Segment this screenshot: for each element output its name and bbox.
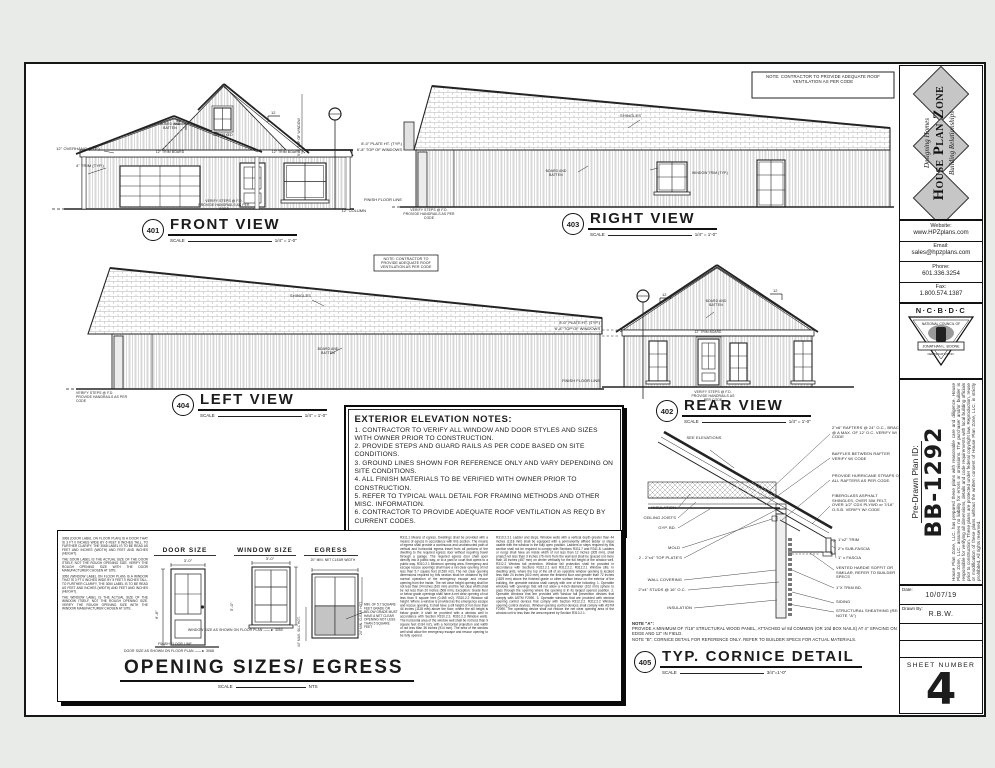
- scale-value: NTS: [309, 684, 318, 689]
- scale-label: SCALE: [218, 684, 233, 689]
- cornice-label: FIBERGLASS ASPHALT SHINGLES, OVER 30# FE…: [832, 494, 898, 512]
- phone-value: 601.336.3254: [900, 270, 982, 277]
- board-batten-callout: BOARD AND BATTEN: [542, 170, 570, 178]
- egress-diagram: [298, 557, 368, 649]
- window-top-dim: 6'-8" TOP OF WINDOWS: [542, 326, 600, 332]
- window-top-dim: 6'-8" TOP OF WINDOWS: [344, 147, 402, 153]
- logo-brand: House Plan Zone: [931, 86, 948, 201]
- ceiling-insulation: [648, 482, 776, 498]
- trim-board-callout: 12" TRIM BOARD: [686, 331, 730, 335]
- plan-id-label: Pre-Drawn Plan ID:: [910, 441, 922, 522]
- opening-note: THE DOOR LABEL IS THE ACTUAL SIZE OF THE…: [62, 558, 148, 573]
- overhang-callout: 12" OVERHANG (TYP.): [56, 147, 100, 152]
- date-row: Date: 10/07/19: [900, 586, 982, 605]
- door-height-dim: 6'-8": [155, 579, 160, 619]
- egress-clear-area: [315, 606, 335, 635]
- cornice-label: 2"x4" STUDS @ 16" O.C.: [630, 588, 686, 593]
- email-value: sales@hpzplans.com: [900, 249, 982, 256]
- door-size-diagram: [153, 557, 223, 653]
- note-item: 4. ALL FINISH MATERIALS TO BE VERIFIED W…: [355, 476, 614, 493]
- website-row: Website: www.HPZplans.com: [900, 221, 982, 242]
- note-item: 3. GROUND LINES SHOWN FOR REFERENCE ONLY…: [355, 460, 614, 477]
- scale-label: SCALE: [200, 413, 215, 418]
- note-item: 6. CONTRACTOR TO PROVIDE ADEQUATE ROOF V…: [355, 509, 614, 526]
- empty-row: [900, 624, 982, 641]
- gable-window-label: 2020 FIXED: [208, 134, 238, 138]
- drawn-by-row: Drawn By: R.B.W.: [900, 605, 982, 624]
- roof-vent-note: NOTE: CONTRACTOR TO PROVIDE ADEQUATE ROO…: [375, 257, 437, 269]
- ncbdc-acronym: N·C·B·D·C: [900, 306, 982, 315]
- cornice-label: BAFFLES BETWEEN RAFTER VERIFY W/ CODE: [832, 452, 894, 461]
- window-height-dim: 5'-0": [230, 571, 235, 611]
- window-height-dim: 9'-0" TOP OF WINDOW: [298, 96, 302, 156]
- side-wall: [112, 334, 600, 389]
- code-text: R311.1 Means of egress. Dwellings shall …: [400, 536, 488, 638]
- roof-vent-note: NOTE: CONTRACTOR TO PROVIDE ADEQUATE ROO…: [755, 75, 891, 85]
- code-text-column-1: R311.1 Means of egress. Dwellings shall …: [400, 536, 488, 696]
- door-width-dim: 3'-0": [170, 559, 206, 564]
- opening-title-text: OPENING SIZES/ EGRESS: [120, 657, 414, 682]
- board-batten-callout: BOARD AND BATTEN: [702, 300, 730, 308]
- fax-value: 1.800.574.1387: [900, 290, 982, 297]
- note-b-text: NOTE "B": CORNICE DETAIL FOR REFERENCE O…: [632, 638, 904, 643]
- fax-row: Fax: 1.800.574.1387: [900, 283, 982, 303]
- scale-label: SCALE: [662, 670, 677, 675]
- cornice-label: PROVIDE HURRICANE STRAPS ON ALL RAFTERS …: [832, 474, 902, 483]
- window-size-label: WINDOW SIZE: [234, 547, 296, 556]
- cornice-label: 1" x FASCIA: [838, 556, 898, 561]
- window-size-diagram: [238, 557, 302, 637]
- front-view-title: 401 FRONT VIEW SCALE1/4" = 1'-0": [142, 216, 297, 243]
- board-batten-callout: BOARD AND BATTEN: [156, 123, 184, 131]
- opening-title: OPENING SIZES/ EGRESS SCALENTS: [120, 657, 414, 689]
- stud-wall: [776, 514, 786, 618]
- window-plan-text: WINDOW SIZE AS SHOWN ON FLOOR PLAN: [188, 628, 262, 632]
- window-plan-code: 3050: [275, 628, 283, 632]
- plan-sheet: 12 12 12" OVERHANG (TYP.) 4" TRIM (TYP.)…: [24, 62, 986, 717]
- ncbdc-section: N·C·B·D·C NATIONAL COUNCIL OF JONATHAN L…: [900, 304, 982, 380]
- cornice-label: INSULATION: [652, 606, 692, 611]
- roof-sheathing: [664, 432, 832, 528]
- door-size-label: DOOR SIZE: [154, 547, 216, 556]
- window-width-dim: 3'-0": [250, 557, 290, 562]
- company-logo: Designing Homes House Plan Zone Building…: [900, 66, 982, 221]
- view-title-text: FRONT VIEW: [168, 216, 297, 236]
- sub-fascia: [826, 538, 831, 552]
- finish-floor-label: FINISH FLOOR LINE: [348, 197, 402, 203]
- left-view-drawing: NOTE: CONTRACTOR TO PROVIDE ADEQUATE ROO…: [62, 254, 607, 424]
- detail-bubble: 402: [656, 400, 678, 422]
- pitch-label: 12: [662, 292, 667, 297]
- scale-value: 1/4" = 1'-0": [305, 413, 327, 418]
- cornice-label: CEILING JOISTS: [630, 516, 676, 521]
- fine-print-wrap: House Plan Zone, LLC. has prepared these…: [951, 383, 981, 581]
- code-text: R310.2.3.1 Ladder and steps. Window well…: [496, 536, 614, 615]
- porch-post: [114, 336, 123, 389]
- website-value: www.HPZplans.com: [900, 229, 982, 236]
- arrow-icon: ——►: [195, 649, 205, 653]
- ncbdc-cert-text: CERTIFICATION NO.: [928, 352, 955, 356]
- view-title-text: REAR VIEW: [682, 397, 811, 417]
- scale-value: 3/4"=1'-0": [767, 670, 786, 675]
- arrow-icon: ——►: [263, 628, 273, 632]
- left-elevation-svg: [62, 254, 607, 424]
- drawn-by-label: Drawn By:: [902, 606, 923, 611]
- left-view-title: 404 LEFT VIEW SCALE1/4" = 1'-0": [172, 391, 327, 418]
- detail-bubble: 401: [142, 219, 164, 241]
- pitch-label: 12: [773, 288, 778, 293]
- cornice-label: 2"x SUB-FASCIA: [838, 547, 898, 552]
- plan-id-section: Pre-Drawn Plan ID: BB-1292 House Plan Zo…: [900, 380, 982, 586]
- egress-label: EGRESS: [304, 547, 358, 556]
- note-item: 1. CONTRACTOR TO VERIFY ALL WINDOW AND D…: [355, 427, 614, 444]
- height-dims: 8'-0" PLATE HT. (TYP.) 6'-8" TOP OF WIND…: [542, 320, 600, 332]
- board-batten-callout: BOARD AND BATTEN: [314, 348, 342, 356]
- empty-row: [900, 641, 982, 658]
- sheet-number-value: 4: [900, 669, 982, 711]
- opening-note: THE WINDOW LABEL IS THE ACTUAL SIZE OF T…: [62, 596, 148, 611]
- window-trim-callout: WINDOW TRIM (TYP.): [692, 172, 734, 176]
- cornice-label: 2 - 2"x4" TOP PLATE'S: [630, 556, 682, 561]
- logo-tagline-bottom: Building Relationships: [948, 111, 956, 175]
- steps-note: VERIFY STEPS @ F.D. PROVIDE HANDRAILS AS…: [76, 392, 128, 404]
- finish-floor-label: FINISH FLOOR LINE: [546, 378, 600, 384]
- email-row: Email: sales@hpzplans.com: [900, 242, 982, 263]
- copyright-fine-print: House Plan Zone, LLC. has prepared these…: [951, 383, 981, 581]
- window-plan-note: WINDOW SIZE AS SHOWN ON FLOOR PLAN ——► 3…: [188, 629, 318, 633]
- contact-section: Website: www.HPZplans.com Email: sales@h…: [900, 221, 982, 304]
- door-plan-note: DOOR SIZE AS SHOWN ON FLOOR PLAN ——► 306…: [124, 650, 254, 654]
- cornice-label: INSULATION: [636, 506, 676, 511]
- front-elevation-svg: 12 12: [52, 66, 362, 221]
- detail-bubble: 403: [562, 213, 584, 235]
- detail-bubble: 405: [634, 651, 656, 673]
- door-plan-text: DOOR SIZE AS SHOWN ON FLOOR PLAN: [124, 649, 194, 653]
- notes-title: EXTERIOR ELEVATION NOTES:: [355, 414, 614, 425]
- steps-note: VERIFY STEPS @ F.D. PROVIDE HANDRAILS AS…: [198, 200, 250, 212]
- opening-sizes-box: 3068 (DOOR LABEL ON FLOOR PLAN) IS A DOO…: [57, 530, 622, 702]
- cornice-label: GYP. BD.: [642, 526, 676, 531]
- sill-height-dim: 44" MAX. SILL HGT.: [298, 603, 302, 647]
- phone-row: Phone: 601.336.3254: [900, 262, 982, 283]
- pitch-label: 12: [271, 110, 276, 115]
- see-elevations-label: SEE ELEVATIONS: [682, 436, 726, 441]
- shingles-callout: SHINGLES: [290, 294, 326, 299]
- scale-value: 1/4" = 1'-0": [695, 232, 717, 237]
- ncbdc-logo: NATIONAL COUNCIL OF JONATHAN L. BOONE CE…: [905, 315, 977, 369]
- plan-id-value: BB-1292: [922, 427, 947, 538]
- front-view-drawing: 12 12 12" OVERHANG (TYP.) 4" TRIM (TYP.)…: [52, 66, 362, 221]
- detail-bubble: 404: [172, 394, 194, 416]
- side-wall: [416, 150, 890, 207]
- finish-floor-label: FINISH FLOOR LINE: [158, 643, 218, 647]
- sheet-number-section: SHEET NUMBER 4: [900, 658, 982, 713]
- opening-note: 3068 (DOOR LABEL ON FLOOR PLAN) IS A DOO…: [62, 537, 148, 556]
- roof-plane: [88, 268, 602, 334]
- egress-width-dim: 20" MIN. NET CLEAR WIDTH: [306, 559, 360, 563]
- cornice-notes: NOTE "A": PROVIDE A MINIMUM OF 7/16" STR…: [632, 622, 904, 643]
- egress-note-wrap: MIN. OF 5.7 SQUARE FEET GRADE OR BELOW G…: [364, 603, 398, 647]
- cornice-label: SIDING: [836, 600, 876, 605]
- view-title-text: LEFT VIEW: [198, 391, 327, 411]
- date-label: Date:: [902, 587, 913, 592]
- trim-callout: 4" TRIM (TYP.): [66, 164, 104, 169]
- cornice-label: MOLD: [660, 546, 680, 551]
- ncbdc-member-name: JONATHAN L. BOONE: [922, 345, 960, 349]
- egress-note: MIN. OF 5.7 SQUARE FEET GRADE OR BELOW G…: [364, 603, 398, 629]
- column-label: 12" COLUMN: [326, 208, 366, 214]
- scale-value: 1/4" = 1'-0": [275, 238, 297, 243]
- note-a-text: PROVIDE A MINIMUM OF 7/16" STRUCTURAL WO…: [632, 627, 904, 637]
- cornice-label: 2"x6" RAFTERS @ 24" O.C., BRACE @ A MAX.…: [832, 426, 902, 440]
- trim-board-callout: 12" TRIM BOARD: [148, 151, 192, 155]
- scale-label: SCALE: [170, 238, 185, 243]
- shingles-callout: SHINGLES: [620, 114, 656, 119]
- logo-tagline-top: Designing Homes: [923, 118, 931, 168]
- right-view-title: 403 RIGHT VIEW SCALE1/4" = 1'-0": [562, 210, 717, 237]
- exterior-elevation-notes-box: EXTERIOR ELEVATION NOTES: 1. CONTRACTOR …: [344, 405, 624, 535]
- cornice-title: 405 TYP. CORNICE DETAIL SCALE3/4"=1'-0": [634, 648, 862, 675]
- cornice-label: WALL COVERING: [638, 578, 682, 583]
- door-plan-code: 3068: [206, 649, 214, 653]
- cornice-label: 1"X TRIM BD.: [836, 586, 896, 591]
- egress-clear-area: [335, 606, 355, 635]
- code-text-column-2: R310.2.3.1 Ladder and steps. Window well…: [496, 536, 614, 696]
- trim-band: [80, 150, 352, 157]
- cornice-label: 1"x2" TRIM: [838, 538, 898, 543]
- cornice-label: STRUCTURAL SHEATHING (RE: NOTE "A"): [836, 609, 902, 618]
- note-item: 5. REFER TO TYPICAL WALL DETAIL FOR FRAM…: [355, 493, 614, 510]
- title-block: Designing Homes House Plan Zone Building…: [899, 65, 983, 714]
- porch-post: [418, 152, 427, 207]
- logo-text: Designing Homes House Plan Zone Building…: [900, 68, 979, 218]
- note-item: 2. PROVIDE STEPS AND GUARD RAILS AS PER …: [355, 443, 614, 460]
- opening-note: 3050 (WINDOW LABEL ON FLOOR PLAN) IS A W…: [62, 575, 148, 594]
- height-dims: 8'-0" PLATE HT. (TYP.) 6'-8" TOP OF WIND…: [344, 141, 402, 153]
- view-title-text: RIGHT VIEW: [588, 210, 717, 230]
- cornice-label: VENTED HARDIE SOFFIT OR SIMILAR, REFER T…: [836, 566, 900, 580]
- scale-label: SCALE: [590, 232, 605, 237]
- steps-note: VERIFY STEPS @ F.D. PROVIDE HANDRAILS AS…: [402, 209, 456, 221]
- cornice-detail-drawing: SEE ELEVATIONS INSULATION CEILING JOISTS…: [630, 420, 905, 620]
- cornice-title-text: TYP. CORNICE DETAIL: [660, 648, 862, 668]
- clear-height-dim: 24" MIN. CLEAR HGT.: [360, 591, 364, 635]
